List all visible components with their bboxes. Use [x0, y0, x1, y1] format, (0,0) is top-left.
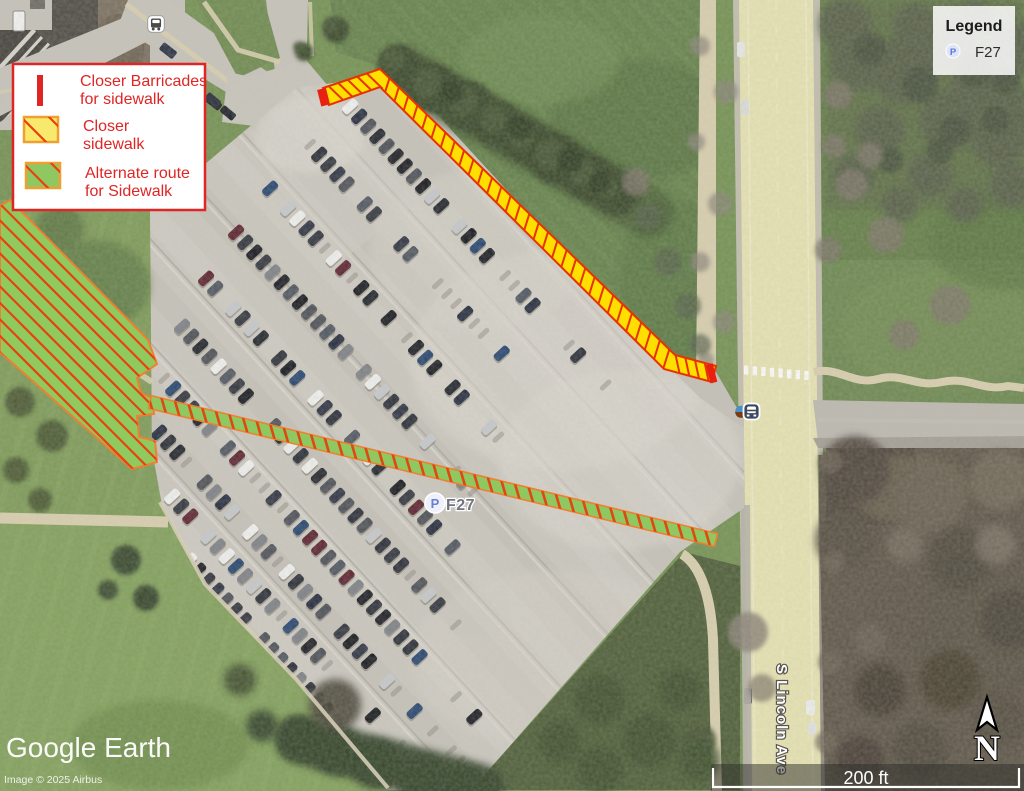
svg-text:P: P	[950, 47, 957, 58]
svg-text:S Lincoln Ave: S Lincoln Ave	[773, 664, 790, 775]
svg-text:Google Earth: Google Earth	[6, 732, 171, 763]
svg-text:F27: F27	[975, 44, 1001, 61]
svg-text:Closer: Closer	[83, 118, 130, 135]
svg-text:Closer Barricades: Closer Barricades	[80, 73, 207, 90]
svg-text:Image © 2025 Airbus: Image © 2025 Airbus	[4, 774, 102, 786]
svg-text:Legend: Legend	[946, 18, 1003, 35]
svg-text:F27: F27	[446, 497, 475, 514]
svg-text:P: P	[431, 496, 440, 511]
svg-text:Alternate route: Alternate route	[85, 165, 190, 182]
svg-text:N: N	[974, 728, 1000, 768]
svg-text:200 ft: 200 ft	[843, 768, 888, 788]
svg-text:for Sidewalk: for Sidewalk	[85, 183, 173, 200]
svg-text:sidewalk: sidewalk	[83, 136, 145, 153]
svg-text:for sidewalk: for sidewalk	[80, 91, 165, 108]
